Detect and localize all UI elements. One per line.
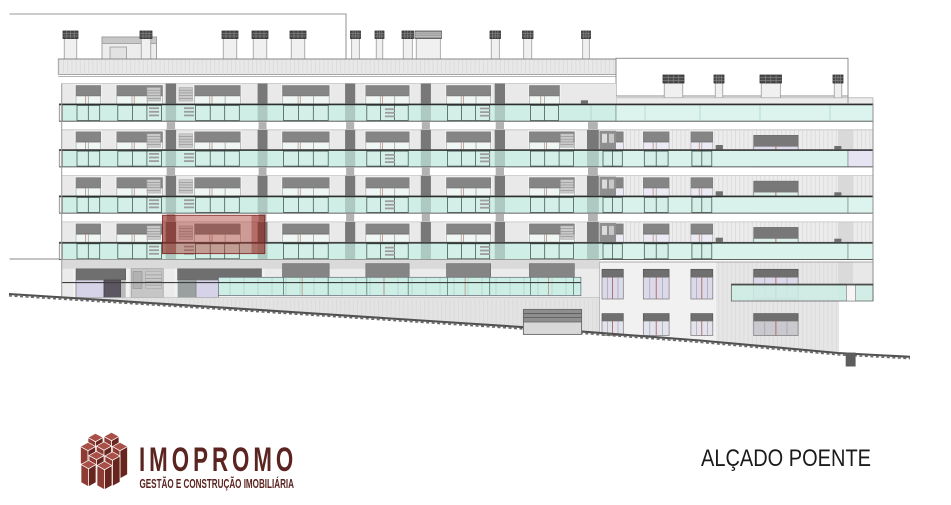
- svg-text:GESTÃO E CONSTRUÇÃO IMOBILIÁRI: GESTÃO E CONSTRUÇÃO IMOBILIÁRIA: [140, 476, 295, 492]
- svg-text:ALÇADO POENTE: ALÇADO POENTE: [701, 445, 871, 472]
- svg-text:IMOPROMO: IMOPROMO: [139, 441, 297, 479]
